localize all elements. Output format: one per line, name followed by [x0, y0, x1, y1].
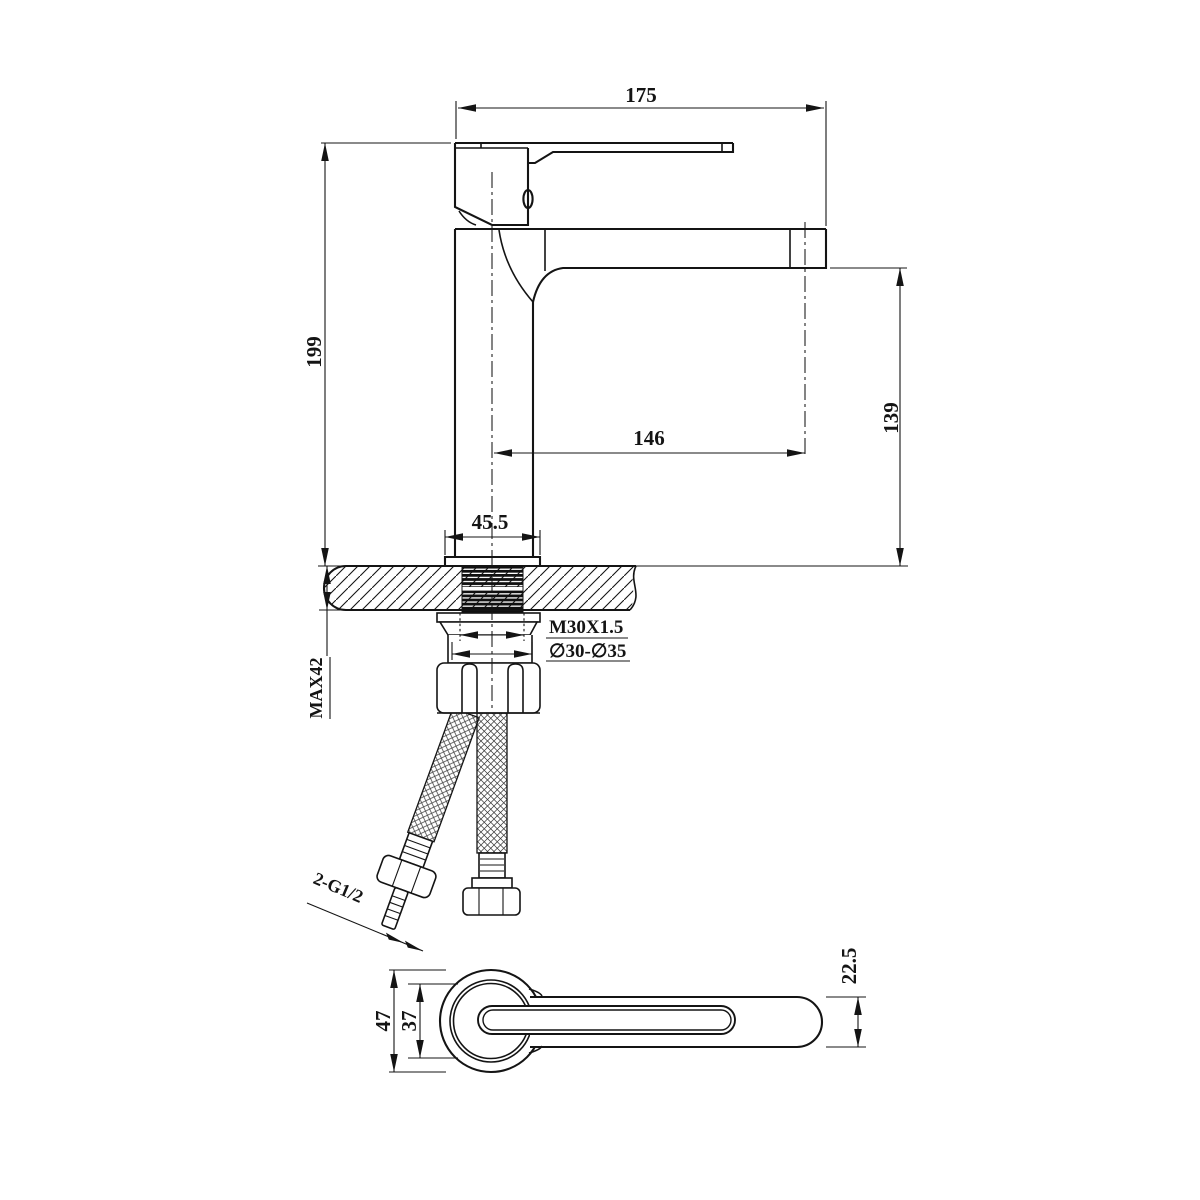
technical-drawing: 175 199 139 146: [0, 0, 1200, 1200]
label-hole-range: ∅30-∅35: [549, 641, 626, 662]
countertop-section: [318, 566, 908, 610]
arrowhead: [390, 1054, 398, 1072]
dim-base-width: 45.5: [445, 510, 540, 555]
arrowhead: [896, 268, 904, 286]
dim-text-139: 139: [879, 402, 903, 434]
nut-body: [437, 663, 540, 713]
mounting-nut: [437, 663, 540, 713]
label-hose-thread: 2-G1/2: [311, 868, 367, 907]
arrowhead: [854, 997, 862, 1015]
supply-hoses: [362, 703, 520, 936]
arrowhead: [405, 941, 423, 951]
hose-thread-tip: [381, 887, 408, 929]
arrowhead: [416, 984, 424, 1002]
lever-underside: [528, 143, 733, 163]
dim-text-47: 47: [371, 1011, 395, 1032]
dim-text-37: 37: [397, 1011, 421, 1032]
arrowhead: [321, 548, 329, 566]
arrowhead: [416, 1040, 424, 1058]
arrowhead: [390, 970, 398, 988]
spout-bottom-edge: [533, 229, 826, 302]
dim-text-max42: MAX42: [306, 658, 326, 719]
hose-nut-vertical: [463, 888, 520, 915]
dim-text-175: 175: [625, 83, 657, 107]
mounting-cone: [440, 622, 537, 635]
faucet-body: [445, 143, 826, 566]
hose-braid-vertical: [477, 713, 507, 853]
front-view: 175 199 139 146: [302, 83, 908, 951]
dim-counter-thickness: MAX42: [306, 566, 331, 719]
dim-text-199: 199: [302, 336, 326, 368]
arrowhead: [458, 104, 476, 112]
dim-spout-reach: 146: [494, 426, 805, 457]
dim-body-inner: 37: [397, 984, 458, 1058]
arrowhead: [787, 449, 805, 457]
body-inner-curve: [499, 230, 533, 302]
plan-view: 47 37 22.5: [371, 948, 866, 1072]
arrowhead: [896, 548, 904, 566]
dim-total-height: 199: [302, 143, 451, 566]
arrowhead: [522, 533, 540, 541]
dim-text-22-5: 22.5: [837, 948, 861, 985]
dim-spout-height: 139: [830, 268, 907, 566]
leader-line: [307, 903, 423, 951]
dim-text-146: 146: [633, 426, 665, 450]
arrowhead: [386, 933, 404, 943]
arrowhead: [854, 1029, 862, 1047]
dim-text-45-5: 45.5: [472, 510, 509, 534]
arrowhead: [321, 143, 329, 161]
hose-collar-vertical: [472, 878, 512, 888]
mounting-neck: [448, 635, 532, 663]
hose-braid-angled: [408, 708, 479, 842]
arrowhead: [494, 449, 512, 457]
dim-lever-width: 22.5: [826, 948, 866, 1047]
extension-lines-175: [456, 101, 826, 226]
dim-total-width: 175: [456, 83, 826, 226]
label-thread-spec: M30X1.5: [549, 617, 623, 638]
supply-hose-vertical: [463, 713, 520, 915]
arrowhead: [806, 104, 824, 112]
extension-lines-22-5: [826, 997, 866, 1047]
drawing-canvas: 175 199 139 146: [0, 0, 1200, 1200]
